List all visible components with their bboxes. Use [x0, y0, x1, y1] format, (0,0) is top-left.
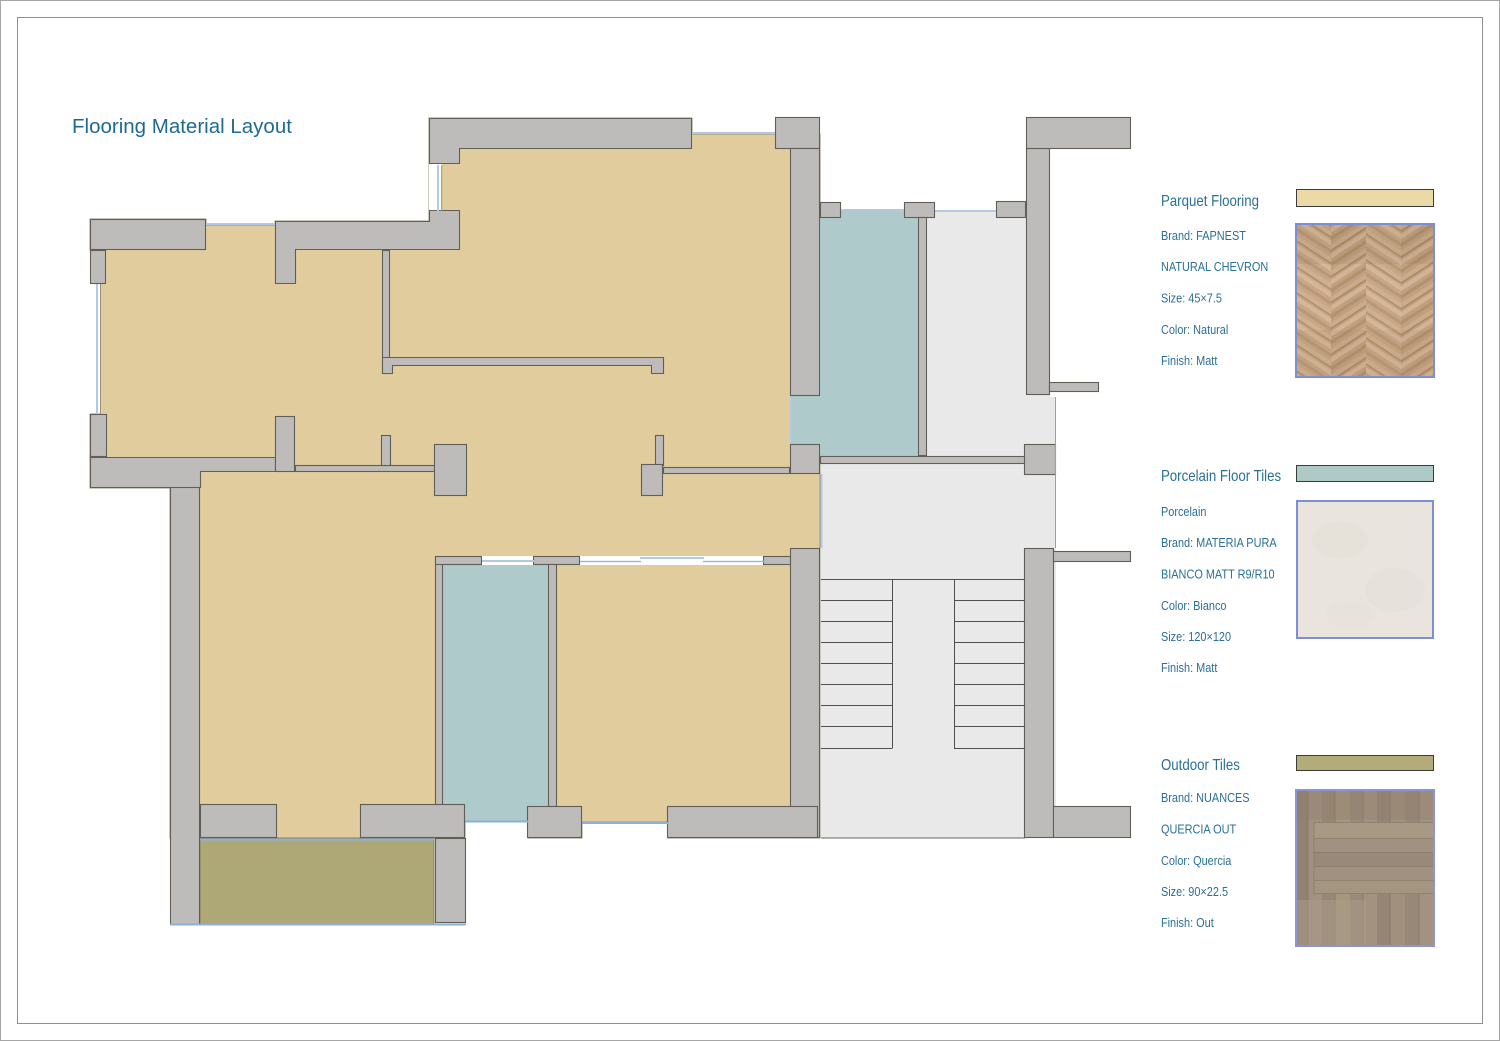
svg-text:Parquet Flooring: Parquet Flooring: [1161, 193, 1259, 210]
svg-text:Finish: Matt: Finish: Matt: [1161, 660, 1218, 675]
svg-text:Color: Bianco: Color: Bianco: [1161, 598, 1227, 613]
svg-text:Brand: NUANCES: Brand: NUANCES: [1161, 790, 1250, 805]
svg-text:Finish: Matt: Finish: Matt: [1161, 353, 1218, 368]
svg-text:Size: 45×7.5: Size: 45×7.5: [1161, 291, 1222, 306]
svg-text:Color: Natural: Color: Natural: [1161, 322, 1228, 337]
svg-text:BIANCO MATT R9/R10: BIANCO MATT R9/R10: [1161, 567, 1275, 582]
svg-text:Size: 90×22.5: Size: 90×22.5: [1161, 884, 1228, 899]
svg-text:Porcelain Floor Tiles: Porcelain Floor Tiles: [1161, 468, 1281, 485]
svg-text:Porcelain: Porcelain: [1161, 504, 1207, 519]
svg-text:Color: Quercia: Color: Quercia: [1161, 853, 1232, 868]
svg-text:Finish: Out: Finish: Out: [1161, 915, 1214, 930]
svg-text:Size: 120×120: Size: 120×120: [1161, 629, 1231, 644]
svg-text:Brand: MATERIA PURA: Brand: MATERIA PURA: [1161, 535, 1277, 550]
svg-text:Brand: FAPNEST: Brand: FAPNEST: [1161, 228, 1247, 243]
svg-text:Outdoor Tiles: Outdoor Tiles: [1161, 757, 1240, 774]
svg-text:QUERCIA OUT: QUERCIA OUT: [1161, 822, 1237, 837]
svg-text:NATURAL CHEVRON: NATURAL CHEVRON: [1161, 259, 1268, 274]
svg-text:Flooring Material Layout: Flooring Material Layout: [72, 115, 292, 138]
